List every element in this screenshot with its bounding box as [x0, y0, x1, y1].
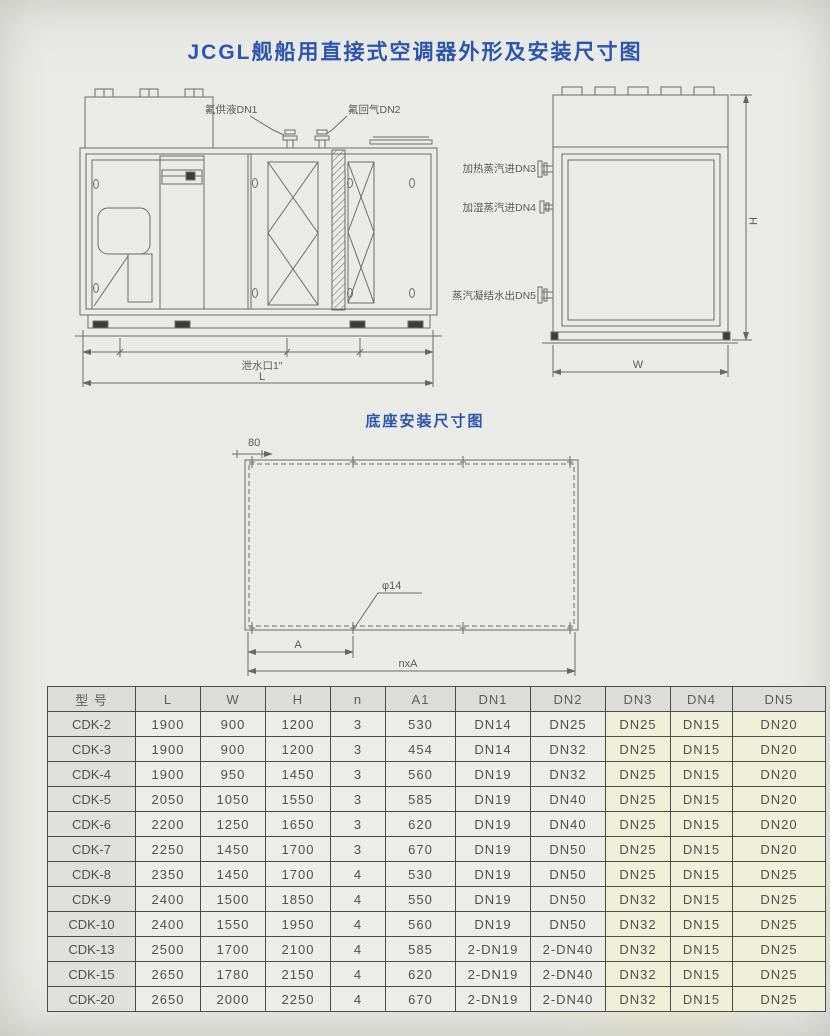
value-cell: 1780 — [201, 962, 266, 987]
value-cell: 1500 — [201, 887, 266, 912]
dn5-label: 蒸汽凝结水出DN5 — [452, 289, 536, 302]
model-cell: CDK-6 — [48, 812, 136, 837]
column-header: n — [331, 687, 386, 712]
value-cell: 1900 — [136, 762, 201, 787]
value-cell: DN15 — [671, 812, 733, 837]
hole-callout-leader — [353, 593, 422, 630]
value-cell: DN19 — [456, 862, 531, 887]
table-body: CDK-2190090012003530DN14DN25DN25DN15DN20… — [48, 712, 826, 1012]
value-cell: 670 — [386, 987, 456, 1012]
dn3-label: 加热蒸汽进DN3 — [462, 162, 536, 175]
value-cell: 2250 — [266, 987, 331, 1012]
column-header: DN5 — [733, 687, 826, 712]
value-cell: 1450 — [266, 762, 331, 787]
table-row: CDK-3190090012003454DN14DN32DN25DN15DN20 — [48, 737, 826, 762]
value-cell: 3 — [331, 787, 386, 812]
dn4-label: 加湿蒸汽进DN4 — [462, 201, 536, 214]
value-cell: 4 — [331, 987, 386, 1012]
value-cell: DN15 — [671, 787, 733, 812]
value-cell: DN19 — [456, 762, 531, 787]
pipe-stub-dn4 — [540, 201, 553, 213]
value-cell: DN25 — [606, 712, 671, 737]
value-cell: DN25 — [606, 787, 671, 812]
value-cell: DN20 — [733, 762, 826, 787]
height-dim-label: H — [748, 217, 760, 225]
value-cell: 1050 — [201, 787, 266, 812]
value-cell: DN15 — [671, 962, 733, 987]
model-cell: CDK-7 — [48, 837, 136, 862]
value-cell: DN50 — [531, 837, 606, 862]
side-skid-base — [551, 332, 730, 340]
value-cell: 2-DN19 — [456, 987, 531, 1012]
pipe-stub-dn3 — [538, 161, 553, 177]
value-cell: DN19 — [456, 812, 531, 837]
side-view-dimensions — [553, 95, 752, 377]
value-cell: 4 — [331, 862, 386, 887]
value-cell: 1700 — [266, 837, 331, 862]
upper-compartment — [85, 97, 213, 148]
value-cell: 1550 — [201, 912, 266, 937]
pitch-dim-label: A — [294, 639, 302, 651]
value-cell: 2000 — [201, 987, 266, 1012]
width-dim-label: W — [633, 359, 644, 371]
value-cell: 2-DN40 — [531, 987, 606, 1012]
value-cell: 2500 — [136, 937, 201, 962]
value-cell: 950 — [201, 762, 266, 787]
column-header: L — [136, 687, 201, 712]
table-row: CDK-2190090012003530DN14DN25DN25DN15DN20 — [48, 712, 826, 737]
value-cell: DN25 — [606, 737, 671, 762]
value-cell: 550 — [386, 887, 456, 912]
value-cell: 2-DN40 — [531, 937, 606, 962]
column-header: 型 号 — [48, 687, 136, 712]
value-cell: DN14 — [456, 737, 531, 762]
value-cell: DN25 — [606, 762, 671, 787]
value-cell: 530 — [386, 712, 456, 737]
table-row: CDK-102400155019504560DN19DN50DN32DN15DN… — [48, 912, 826, 937]
value-cell: 1650 — [266, 812, 331, 837]
table-row: CDK-2026502000225046702-DN192-DN40DN32DN… — [48, 987, 826, 1012]
lifting-lugs — [95, 89, 203, 97]
table-row: CDK-1325001700210045852-DN192-DN40DN32DN… — [48, 937, 826, 962]
value-cell: DN25 — [733, 912, 826, 937]
value-cell: 2250 — [136, 837, 201, 862]
value-cell: 620 — [386, 812, 456, 837]
model-cell: CDK-10 — [48, 912, 136, 937]
door-panel-2 — [348, 162, 374, 303]
value-cell: 670 — [386, 837, 456, 862]
model-cell: CDK-15 — [48, 962, 136, 987]
column-header: DN1 — [456, 687, 531, 712]
side-view-casing — [538, 87, 738, 343]
value-cell: DN15 — [671, 837, 733, 862]
value-cell: 2-DN19 — [456, 962, 531, 987]
value-cell: 454 — [386, 737, 456, 762]
value-cell: 4 — [331, 887, 386, 912]
value-cell: 900 — [201, 712, 266, 737]
model-cell: CDK-2 — [48, 712, 136, 737]
value-cell: 4 — [331, 962, 386, 987]
value-cell: DN19 — [456, 912, 531, 937]
top-hatch — [370, 140, 432, 144]
value-cell: 2650 — [136, 962, 201, 987]
value-cell: DN50 — [531, 912, 606, 937]
value-cell: DN25 — [733, 962, 826, 987]
table-row: CDK-1526501780215046202-DN192-DN40DN32DN… — [48, 962, 826, 987]
value-cell: 1550 — [266, 787, 331, 812]
value-cell: DN25 — [733, 862, 826, 887]
base-frame — [232, 450, 578, 676]
value-cell: 585 — [386, 937, 456, 962]
value-cell: DN15 — [671, 937, 733, 962]
value-cell: 560 — [386, 762, 456, 787]
value-cell: 1200 — [266, 737, 331, 762]
model-cell: CDK-5 — [48, 787, 136, 812]
value-cell: DN20 — [733, 712, 826, 737]
value-cell: 1700 — [266, 862, 331, 887]
model-cell: CDK-13 — [48, 937, 136, 962]
value-cell: DN32 — [606, 987, 671, 1012]
value-cell: DN20 — [733, 737, 826, 762]
value-cell: 1450 — [201, 862, 266, 887]
pipe-stub-dn2 — [315, 130, 329, 148]
coil-strip — [332, 150, 345, 310]
dn2-label: 氟回气DN2 — [348, 103, 401, 116]
duct-column — [160, 156, 204, 309]
value-cell: DN14 — [456, 712, 531, 737]
value-cell: 620 — [386, 962, 456, 987]
value-cell: DN25 — [531, 712, 606, 737]
column-header: A1 — [386, 687, 456, 712]
base-diagram-title: 底座安装尺寸图 — [315, 410, 535, 431]
value-cell: 2200 — [136, 812, 201, 837]
table-row: CDK-4190095014503560DN19DN32DN25DN15DN20 — [48, 762, 826, 787]
value-cell: DN15 — [671, 912, 733, 937]
value-cell: 1900 — [136, 737, 201, 762]
value-cell: DN25 — [733, 987, 826, 1012]
value-cell: DN50 — [531, 862, 606, 887]
offset-dim-label: 80 — [248, 437, 260, 449]
column-header: DN4 — [671, 687, 733, 712]
value-cell: DN15 — [671, 887, 733, 912]
model-cell: CDK-20 — [48, 987, 136, 1012]
length-dim-label: L — [259, 371, 265, 383]
value-cell: DN32 — [531, 737, 606, 762]
value-cell: 1450 — [201, 837, 266, 862]
value-cell: DN19 — [456, 887, 531, 912]
value-cell: 1200 — [266, 712, 331, 737]
fan-scroll — [98, 208, 150, 254]
value-cell: DN25 — [606, 837, 671, 862]
value-cell: 2-DN40 — [531, 962, 606, 987]
value-cell: 4 — [331, 912, 386, 937]
column-header: W — [201, 687, 266, 712]
base-diagram-drawing: 80 φ14 A nxA — [210, 430, 630, 690]
value-cell: DN19 — [456, 787, 531, 812]
value-cell: DN25 — [606, 812, 671, 837]
value-cell: DN15 — [671, 762, 733, 787]
value-cell: 2050 — [136, 787, 201, 812]
value-cell: 2650 — [136, 987, 201, 1012]
value-cell: DN20 — [733, 812, 826, 837]
table-row: CDK-72250145017003670DN19DN50DN25DN15DN2… — [48, 837, 826, 862]
front-view-casing — [75, 89, 442, 336]
document-page: JCGL舰船用直接式空调器外形及安装尺寸图 — [0, 0, 830, 1036]
door-panel-1 — [268, 162, 318, 305]
value-cell: DN15 — [671, 712, 733, 737]
value-cell: 2350 — [136, 862, 201, 887]
column-header: H — [266, 687, 331, 712]
mounting-holes — [249, 456, 573, 634]
value-cell: DN32 — [531, 762, 606, 787]
value-cell: 2100 — [266, 937, 331, 962]
table-row: CDK-82350145017004530DN19DN50DN25DN15DN2… — [48, 862, 826, 887]
value-cell: 560 — [386, 912, 456, 937]
dn1-label: 氟供液DN1 — [205, 103, 258, 116]
value-cell: DN25 — [733, 887, 826, 912]
table-header-row: 型 号LWHnA1DN1DN2DN3DN4DN5 — [48, 687, 826, 712]
value-cell: 2-DN19 — [456, 937, 531, 962]
value-cell: 1250 — [201, 812, 266, 837]
value-cell: 3 — [331, 762, 386, 787]
value-cell: 530 — [386, 862, 456, 887]
value-cell: DN32 — [606, 937, 671, 962]
model-cell: CDK-8 — [48, 862, 136, 887]
column-header: DN3 — [606, 687, 671, 712]
value-cell: 1900 — [136, 712, 201, 737]
model-cell: CDK-3 — [48, 737, 136, 762]
value-cell: DN32 — [606, 912, 671, 937]
spec-table: 型 号LWHnA1DN1DN2DN3DN4DN5 CDK-21900900120… — [47, 686, 826, 1012]
value-cell: 3 — [331, 737, 386, 762]
value-cell: 3 — [331, 837, 386, 862]
value-cell: 1950 — [266, 912, 331, 937]
value-cell: 585 — [386, 787, 456, 812]
value-cell: DN50 — [531, 887, 606, 912]
value-cell: DN25 — [606, 862, 671, 887]
value-cell: 2400 — [136, 887, 201, 912]
value-cell: DN32 — [606, 962, 671, 987]
value-cell: DN15 — [671, 737, 733, 762]
value-cell: DN40 — [531, 787, 606, 812]
side-lifting-lugs — [562, 87, 714, 95]
pipe-stub-dn5 — [538, 287, 553, 303]
table-row: CDK-52050105015503585DN19DN40DN25DN15DN2… — [48, 787, 826, 812]
value-cell: DN19 — [456, 837, 531, 862]
value-cell: DN20 — [733, 787, 826, 812]
total-dim-label: nxA — [399, 658, 419, 670]
hole-size-label: φ14 — [382, 580, 401, 592]
pipe-stub-dn1 — [283, 130, 297, 148]
fan-compartment — [92, 160, 204, 309]
front-view-drawing: 氟供液DN1 氟回气DN2 泄水口1" L — [60, 80, 460, 392]
skid-base — [88, 315, 430, 328]
value-cell: 1700 — [201, 937, 266, 962]
fan-motor — [128, 254, 152, 302]
model-cell: CDK-4 — [48, 762, 136, 787]
value-cell: DN40 — [531, 812, 606, 837]
value-cell: 3 — [331, 712, 386, 737]
value-cell: 1850 — [266, 887, 331, 912]
value-cell: DN15 — [671, 987, 733, 1012]
value-cell: 4 — [331, 937, 386, 962]
value-cell: DN32 — [606, 887, 671, 912]
column-header: DN2 — [531, 687, 606, 712]
value-cell: 3 — [331, 812, 386, 837]
value-cell: 2150 — [266, 962, 331, 987]
value-cell: DN25 — [733, 937, 826, 962]
page-title: JCGL舰船用直接式空调器外形及安装尺寸图 — [0, 36, 830, 66]
value-cell: 900 — [201, 737, 266, 762]
side-view-drawing: 加热蒸汽进DN3 加湿蒸汽进DN4 蒸汽凝结水出DN5 W H — [430, 80, 780, 392]
table-row: CDK-92400150018504550DN19DN50DN32DN15DN2… — [48, 887, 826, 912]
value-cell: DN15 — [671, 862, 733, 887]
model-cell: CDK-9 — [48, 887, 136, 912]
value-cell: DN20 — [733, 837, 826, 862]
value-cell: 2400 — [136, 912, 201, 937]
table-row: CDK-62200125016503620DN19DN40DN25DN15DN2… — [48, 812, 826, 837]
